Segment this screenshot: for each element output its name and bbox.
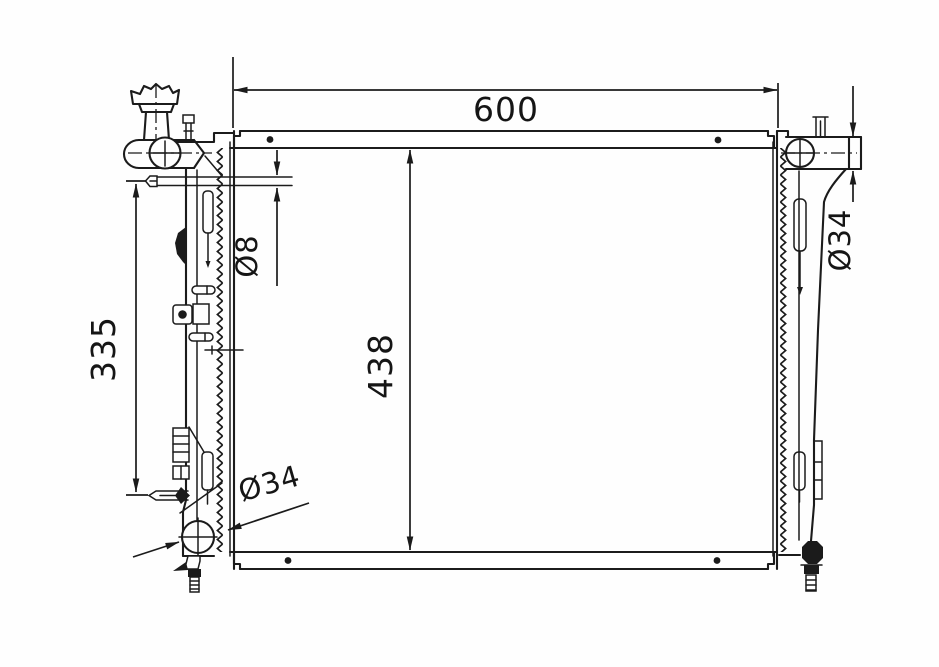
core-top-beam [230,131,777,148]
core-bottom-beam [230,552,777,569]
dimension-o34-inlet: Ø34 [823,86,857,271]
core-right-header [773,131,788,569]
right-inlet-pipe [781,137,861,169]
dimension-o8: Ø8 [230,150,277,286]
dimension-335: 335 [84,181,148,495]
dim-width-label: 600 [473,90,539,129]
dimension-438: 438 [361,150,410,550]
right-tank-slots [794,199,806,502]
dim-left-span-label: 335 [84,316,123,382]
radiator-technical-drawing: 600 438 335 Ø8 Ø34 Ø34 [0,0,939,667]
bleed-screw [183,115,194,142]
left-tank [124,84,292,592]
lower-mount-pin [149,487,190,504]
right-tank [777,117,861,591]
dim-height-label: 438 [361,333,400,399]
right-edge-bracket [814,441,822,499]
dim-outlet-diameter-label: Ø34 [234,458,304,508]
side-bracket [175,227,186,265]
dim-inlet-diameter-label: Ø34 [823,209,857,272]
radiator-core [215,131,788,569]
beam-rivet-dots [267,136,722,564]
left-drain-plug [173,556,201,592]
outlet-port [179,518,217,556]
dimension-600: 600 [233,57,778,129]
pipe-top-stub [813,117,828,137]
dim-tube-diameter-label: Ø8 [230,234,264,277]
core-right-serrated-edge [779,148,788,552]
right-drain-plug [801,541,823,591]
